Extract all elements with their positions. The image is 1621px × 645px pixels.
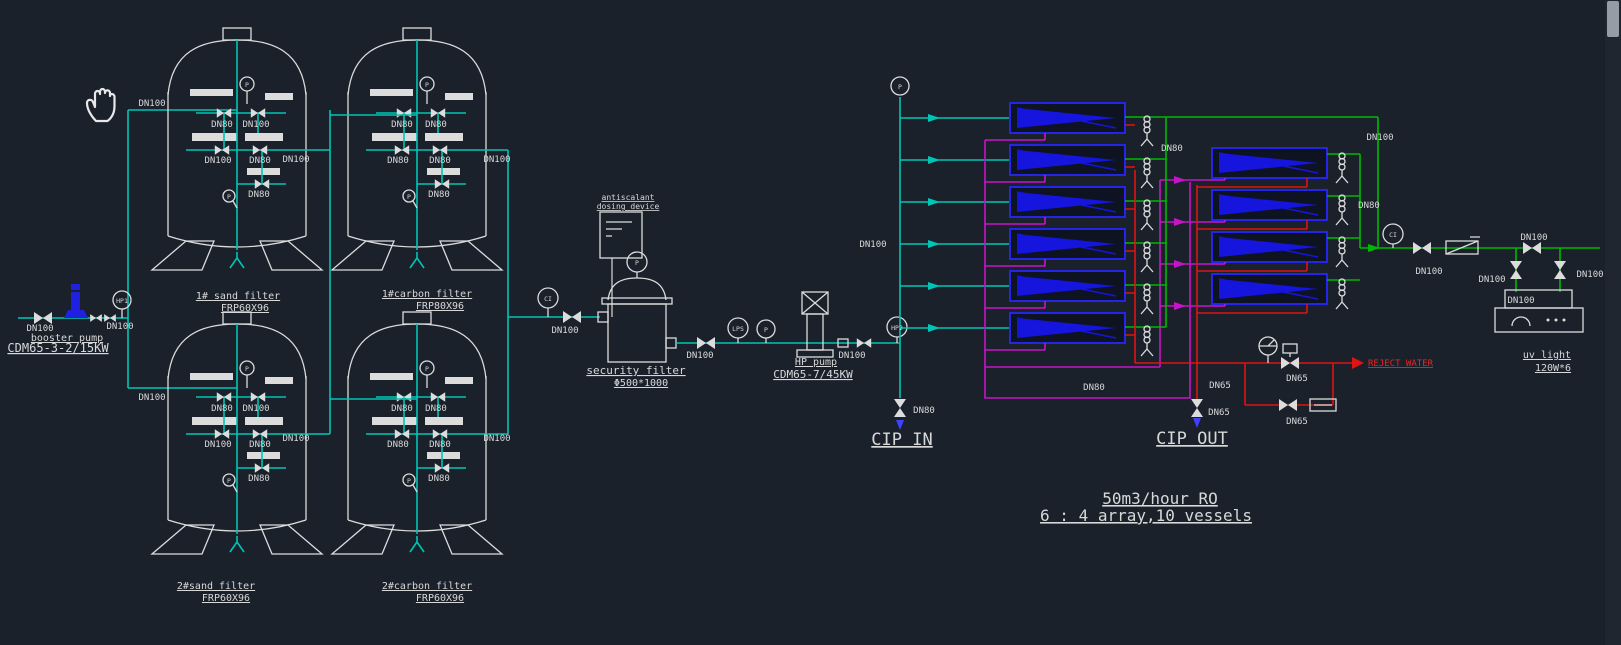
pipe-label: DN100 <box>106 322 133 332</box>
pipe-label: DN80 <box>428 190 450 200</box>
instrument-tag: P <box>635 259 639 267</box>
reject-water-label: REJECT WATER <box>1368 359 1434 369</box>
pipe-label: DN80 <box>425 404 447 414</box>
instrument-tag: CI <box>1389 231 1397 239</box>
cip-in-arrow <box>896 420 904 430</box>
scrollbar[interactable] <box>1605 0 1621 645</box>
cip-out-label: CIP OUT <box>1156 429 1228 449</box>
ro-membrane-array <box>1010 103 1327 343</box>
instrument-tag: P <box>407 193 411 201</box>
pipe-label: DN100 <box>838 351 865 361</box>
tank-model: FRP60X96 <box>221 303 269 314</box>
scrollbar-thumb[interactable] <box>1607 1 1619 37</box>
uv-light-label: uv light <box>1523 350 1571 361</box>
hp-pump-label: HP pump <box>795 357 837 368</box>
pipe-label: DN80 <box>913 406 935 416</box>
reject-arrow <box>1352 357 1364 369</box>
valve-actuator <box>1283 344 1297 353</box>
sand-filter-2-tank <box>152 312 322 554</box>
tank-model: FRP60X96 <box>202 593 250 604</box>
sand-filter-1-tank <box>152 28 322 270</box>
pipe-label: DN80 <box>211 120 233 130</box>
pipe-label: DN80 <box>387 156 409 166</box>
pipe-label: DN80 <box>1161 144 1183 154</box>
pipe-label: DN80 <box>248 190 270 200</box>
carbon-filter-1-tank <box>332 28 502 270</box>
tank-label: 1# sand filter <box>196 291 280 302</box>
ro-subtitle: 6 : 4 array,10 vessels <box>1040 506 1252 525</box>
pipe-label: DN100 <box>551 326 578 336</box>
instrument-labels: P P P P P P P P P P P LPS HP1 HP2 CI CI <box>116 81 1397 485</box>
instrument-tag: P <box>425 365 429 373</box>
instrument-tag: P <box>245 365 249 373</box>
pipe-label: DN65 <box>1209 381 1231 391</box>
annotation-labels: CIP IN CIP OUT REJECT WATER 50m3/hour RO… <box>871 359 1433 525</box>
tank-label: 1#carbon filter <box>382 289 472 300</box>
carbon-filter-2-tank <box>332 312 502 554</box>
pipe-label: DN100 <box>1366 133 1393 143</box>
pipe-label: DN80 <box>1358 201 1380 211</box>
cip-in-label: CIP IN <box>871 430 932 450</box>
pipe-label: DN100 <box>1507 296 1534 306</box>
pretreatment-group <box>538 212 907 362</box>
instrument-tag: LPS <box>732 325 744 333</box>
pipe-label: DN80 <box>1083 383 1105 393</box>
pipe-label: DN100 <box>138 393 165 403</box>
pipe-label: DN65 <box>1286 417 1308 427</box>
pipe-label: DN100 <box>1478 275 1505 285</box>
tank-model: FRP60X96 <box>416 593 464 604</box>
pipe-label: DN100 <box>282 434 309 444</box>
pipe-label: DN80 <box>249 440 271 450</box>
security-filter-symbol <box>598 252 676 362</box>
instrument-tag: P <box>425 81 429 89</box>
pipe-label: DN100 <box>1520 233 1547 243</box>
cip-out-arrow <box>1193 418 1201 428</box>
tank-model: FRP80X96 <box>416 301 464 312</box>
pipe-label: DN100 <box>483 434 510 444</box>
pipe-label: DN80 <box>429 440 451 450</box>
pipe-label: DN100 <box>686 351 713 361</box>
pipe-label: DN100 <box>242 120 269 130</box>
pipe-label: DN65 <box>1208 408 1230 418</box>
pipe-label: DN80 <box>391 120 413 130</box>
pipe-label: DN100 <box>1415 267 1442 277</box>
dosing-device-label-2: dosing device <box>597 202 660 211</box>
instrument-tag: P <box>407 477 411 485</box>
ro-feed-header <box>891 77 1010 430</box>
instrument-tag: P <box>898 83 902 91</box>
booster-pump-model: CDM65-3-2/15KW <box>7 341 109 355</box>
security-filter-label: security filter <box>586 364 686 377</box>
pipe-label: DN80 <box>248 474 270 484</box>
instrument-tag: HP1 <box>116 297 128 305</box>
cad-viewport[interactable]: DN100 DN100 DN100 DN100 DN100 DN100 DN10… <box>0 0 1621 645</box>
pipe-label: DN80 <box>387 440 409 450</box>
scrollbar-track[interactable] <box>1605 0 1621 645</box>
hp-pump-model: CDM65-7/45KW <box>773 368 853 381</box>
pipe-label: DN100 <box>483 155 510 165</box>
pipe-label: DN100 <box>242 404 269 414</box>
pipe-label: DN65 <box>1286 374 1308 384</box>
hand-cursor-icon <box>87 89 115 121</box>
dosing-device-label-1: antiscalant <box>602 193 655 202</box>
hp-pump-symbol <box>797 292 833 357</box>
instrument-tag: CI <box>544 295 552 303</box>
pipe-label: DN80 <box>211 404 233 414</box>
security-filter-model: Φ500*1000 <box>614 378 668 389</box>
instrument-tag: HP2 <box>891 324 903 332</box>
pid-drawing: DN100 DN100 DN100 DN100 DN100 DN100 DN10… <box>0 0 1621 645</box>
tank-label: 2#carbon filter <box>382 581 472 592</box>
pipe-label: DN80 <box>249 156 271 166</box>
pipe-label: DN100 <box>204 156 231 166</box>
pipe-label: DN100 <box>859 240 886 250</box>
instrument-tag: P <box>245 81 249 89</box>
pipe-label: DN80 <box>428 474 450 484</box>
uv-light-model: 120W*6 <box>1535 363 1571 374</box>
pipe-label: DN100 <box>138 99 165 109</box>
pipe-label: DN100 <box>282 155 309 165</box>
instrument-tag: P <box>764 326 768 334</box>
pipe-label: DN80 <box>391 404 413 414</box>
instrument-tag: P <box>227 193 231 201</box>
booster-pump-symbol <box>64 284 88 318</box>
tank-label: 2#sand filter <box>177 581 255 592</box>
pipe-label: DN100 <box>1576 270 1603 280</box>
pipe-label: DN80 <box>429 156 451 166</box>
instrument-tag: P <box>227 477 231 485</box>
pipe-label: DN100 <box>204 440 231 450</box>
pipe-label: DN80 <box>425 120 447 130</box>
